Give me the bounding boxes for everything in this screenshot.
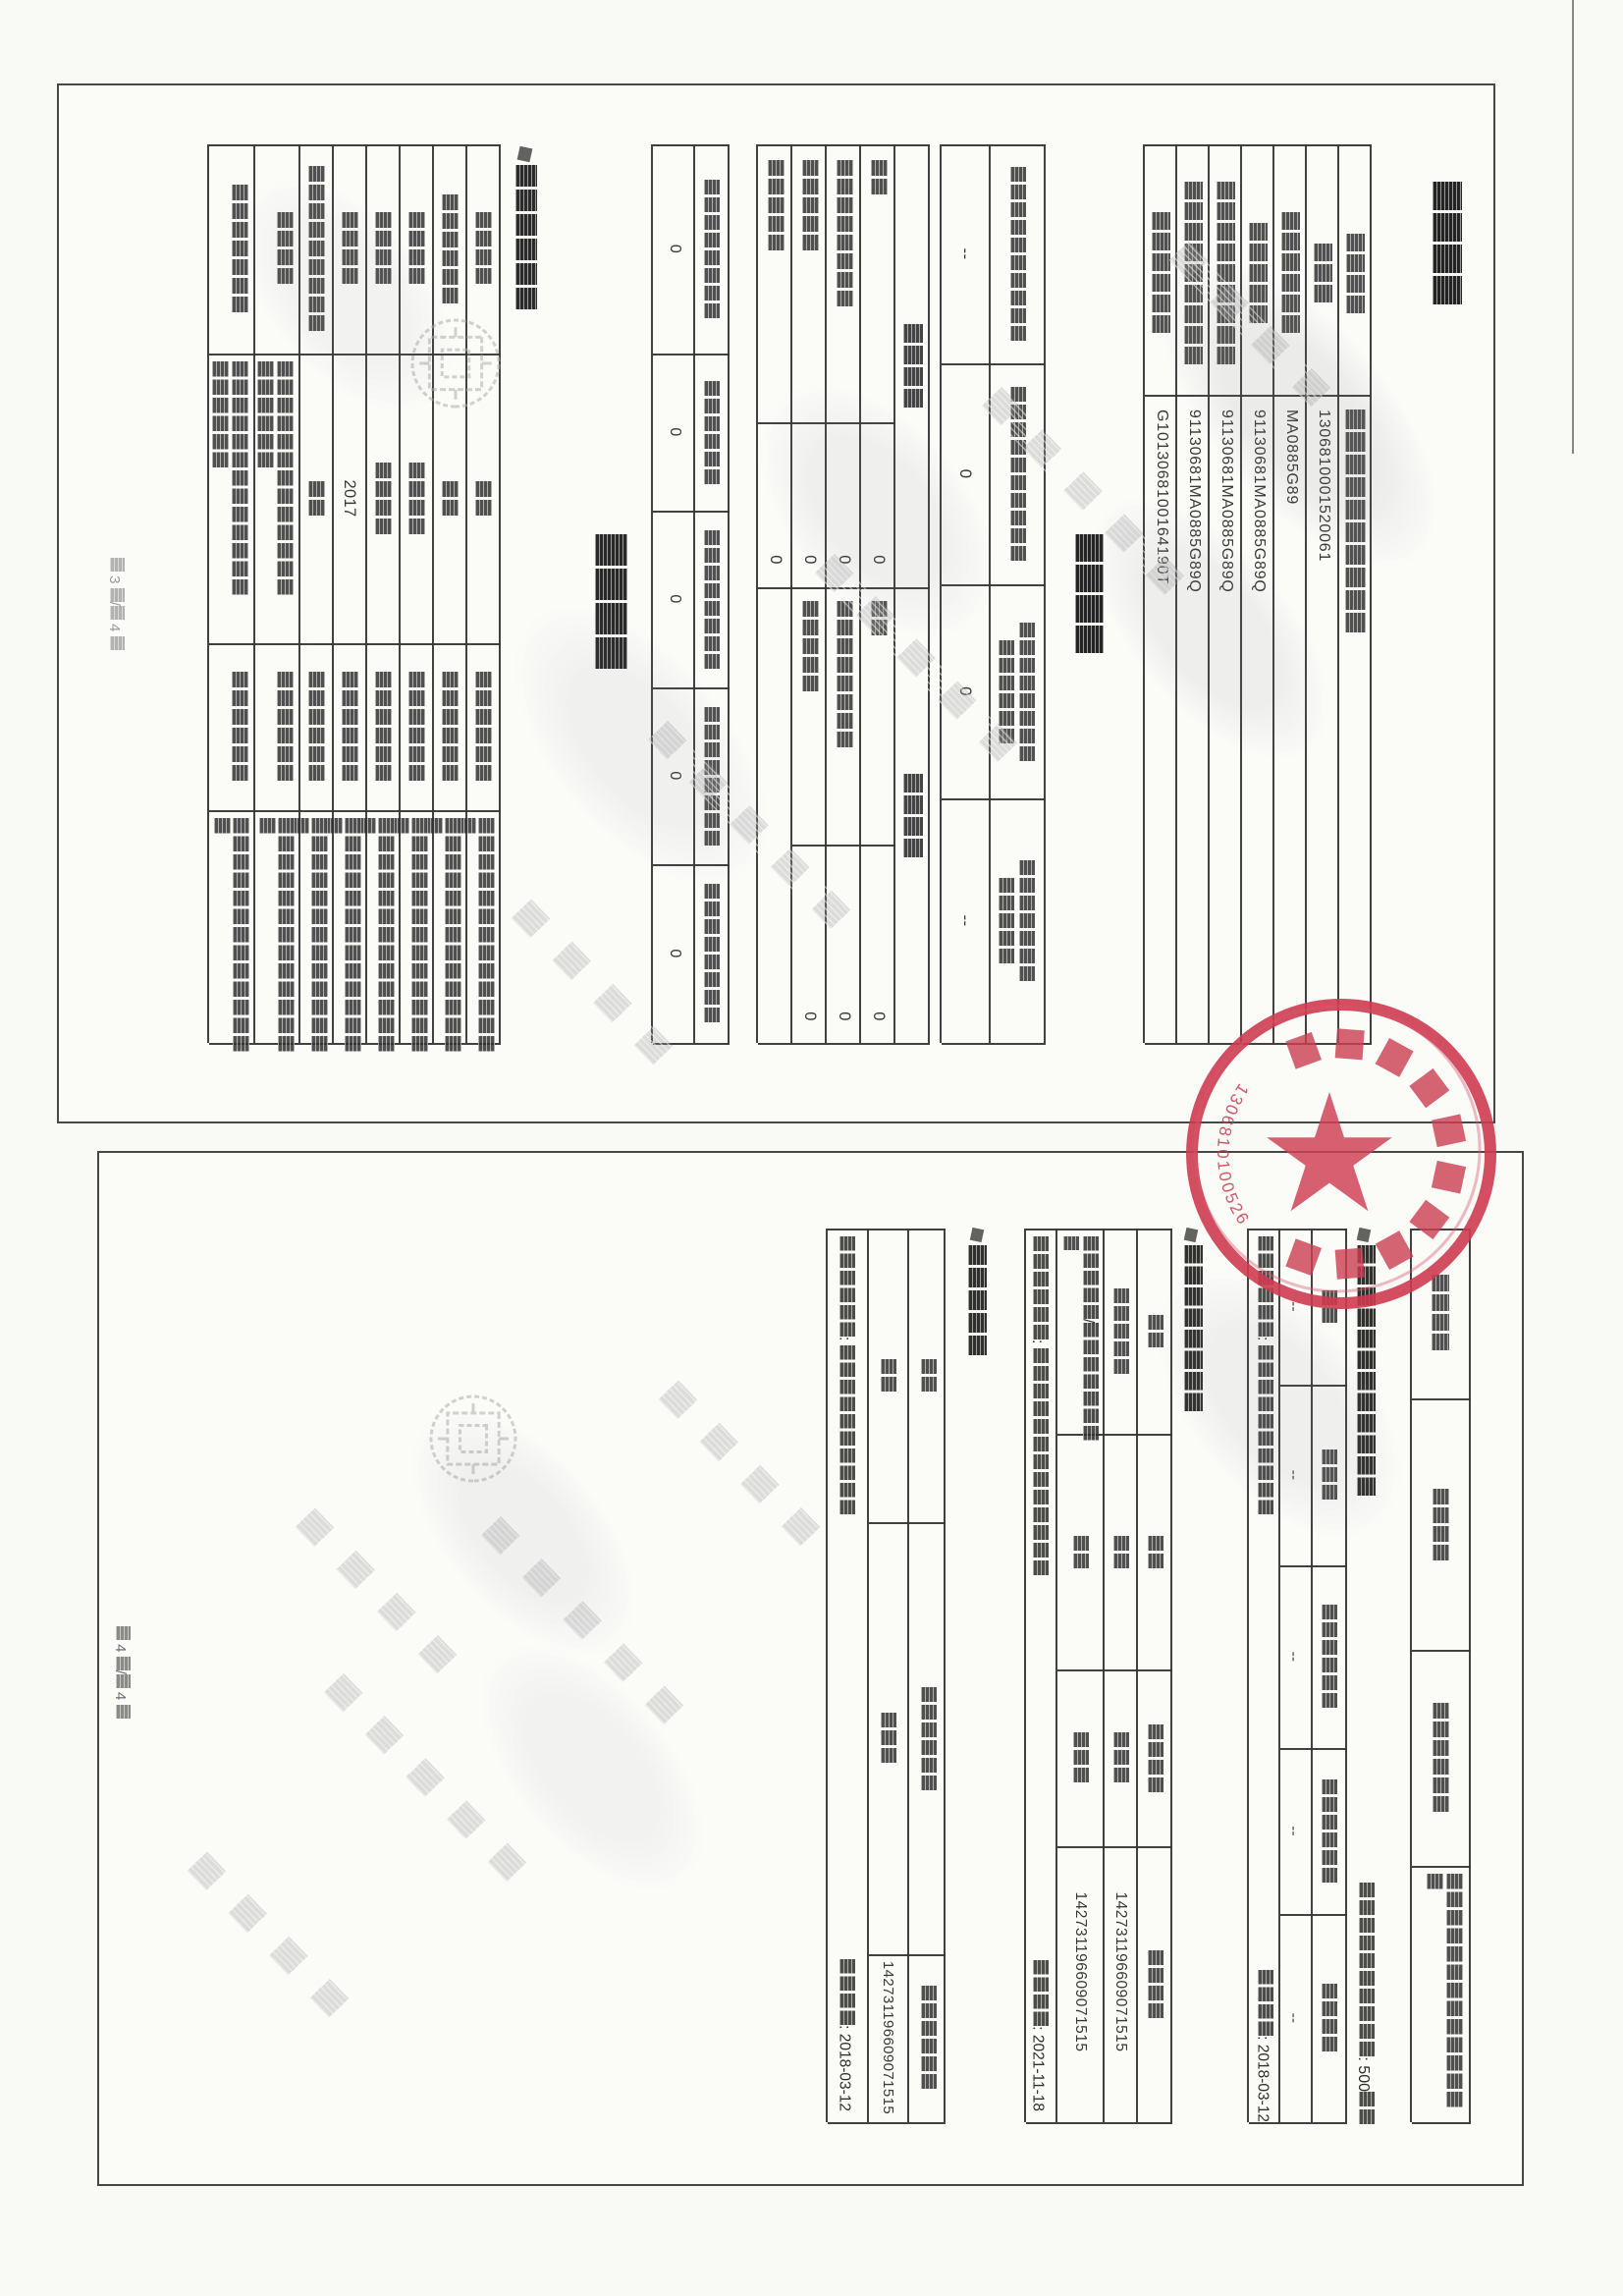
svg-text:0: 0	[1214, 1149, 1232, 1158]
svg-text:1: 1	[1214, 1160, 1233, 1171]
svg-text:1: 1	[1214, 1137, 1233, 1148]
svg-text:8: 8	[1215, 1125, 1234, 1138]
